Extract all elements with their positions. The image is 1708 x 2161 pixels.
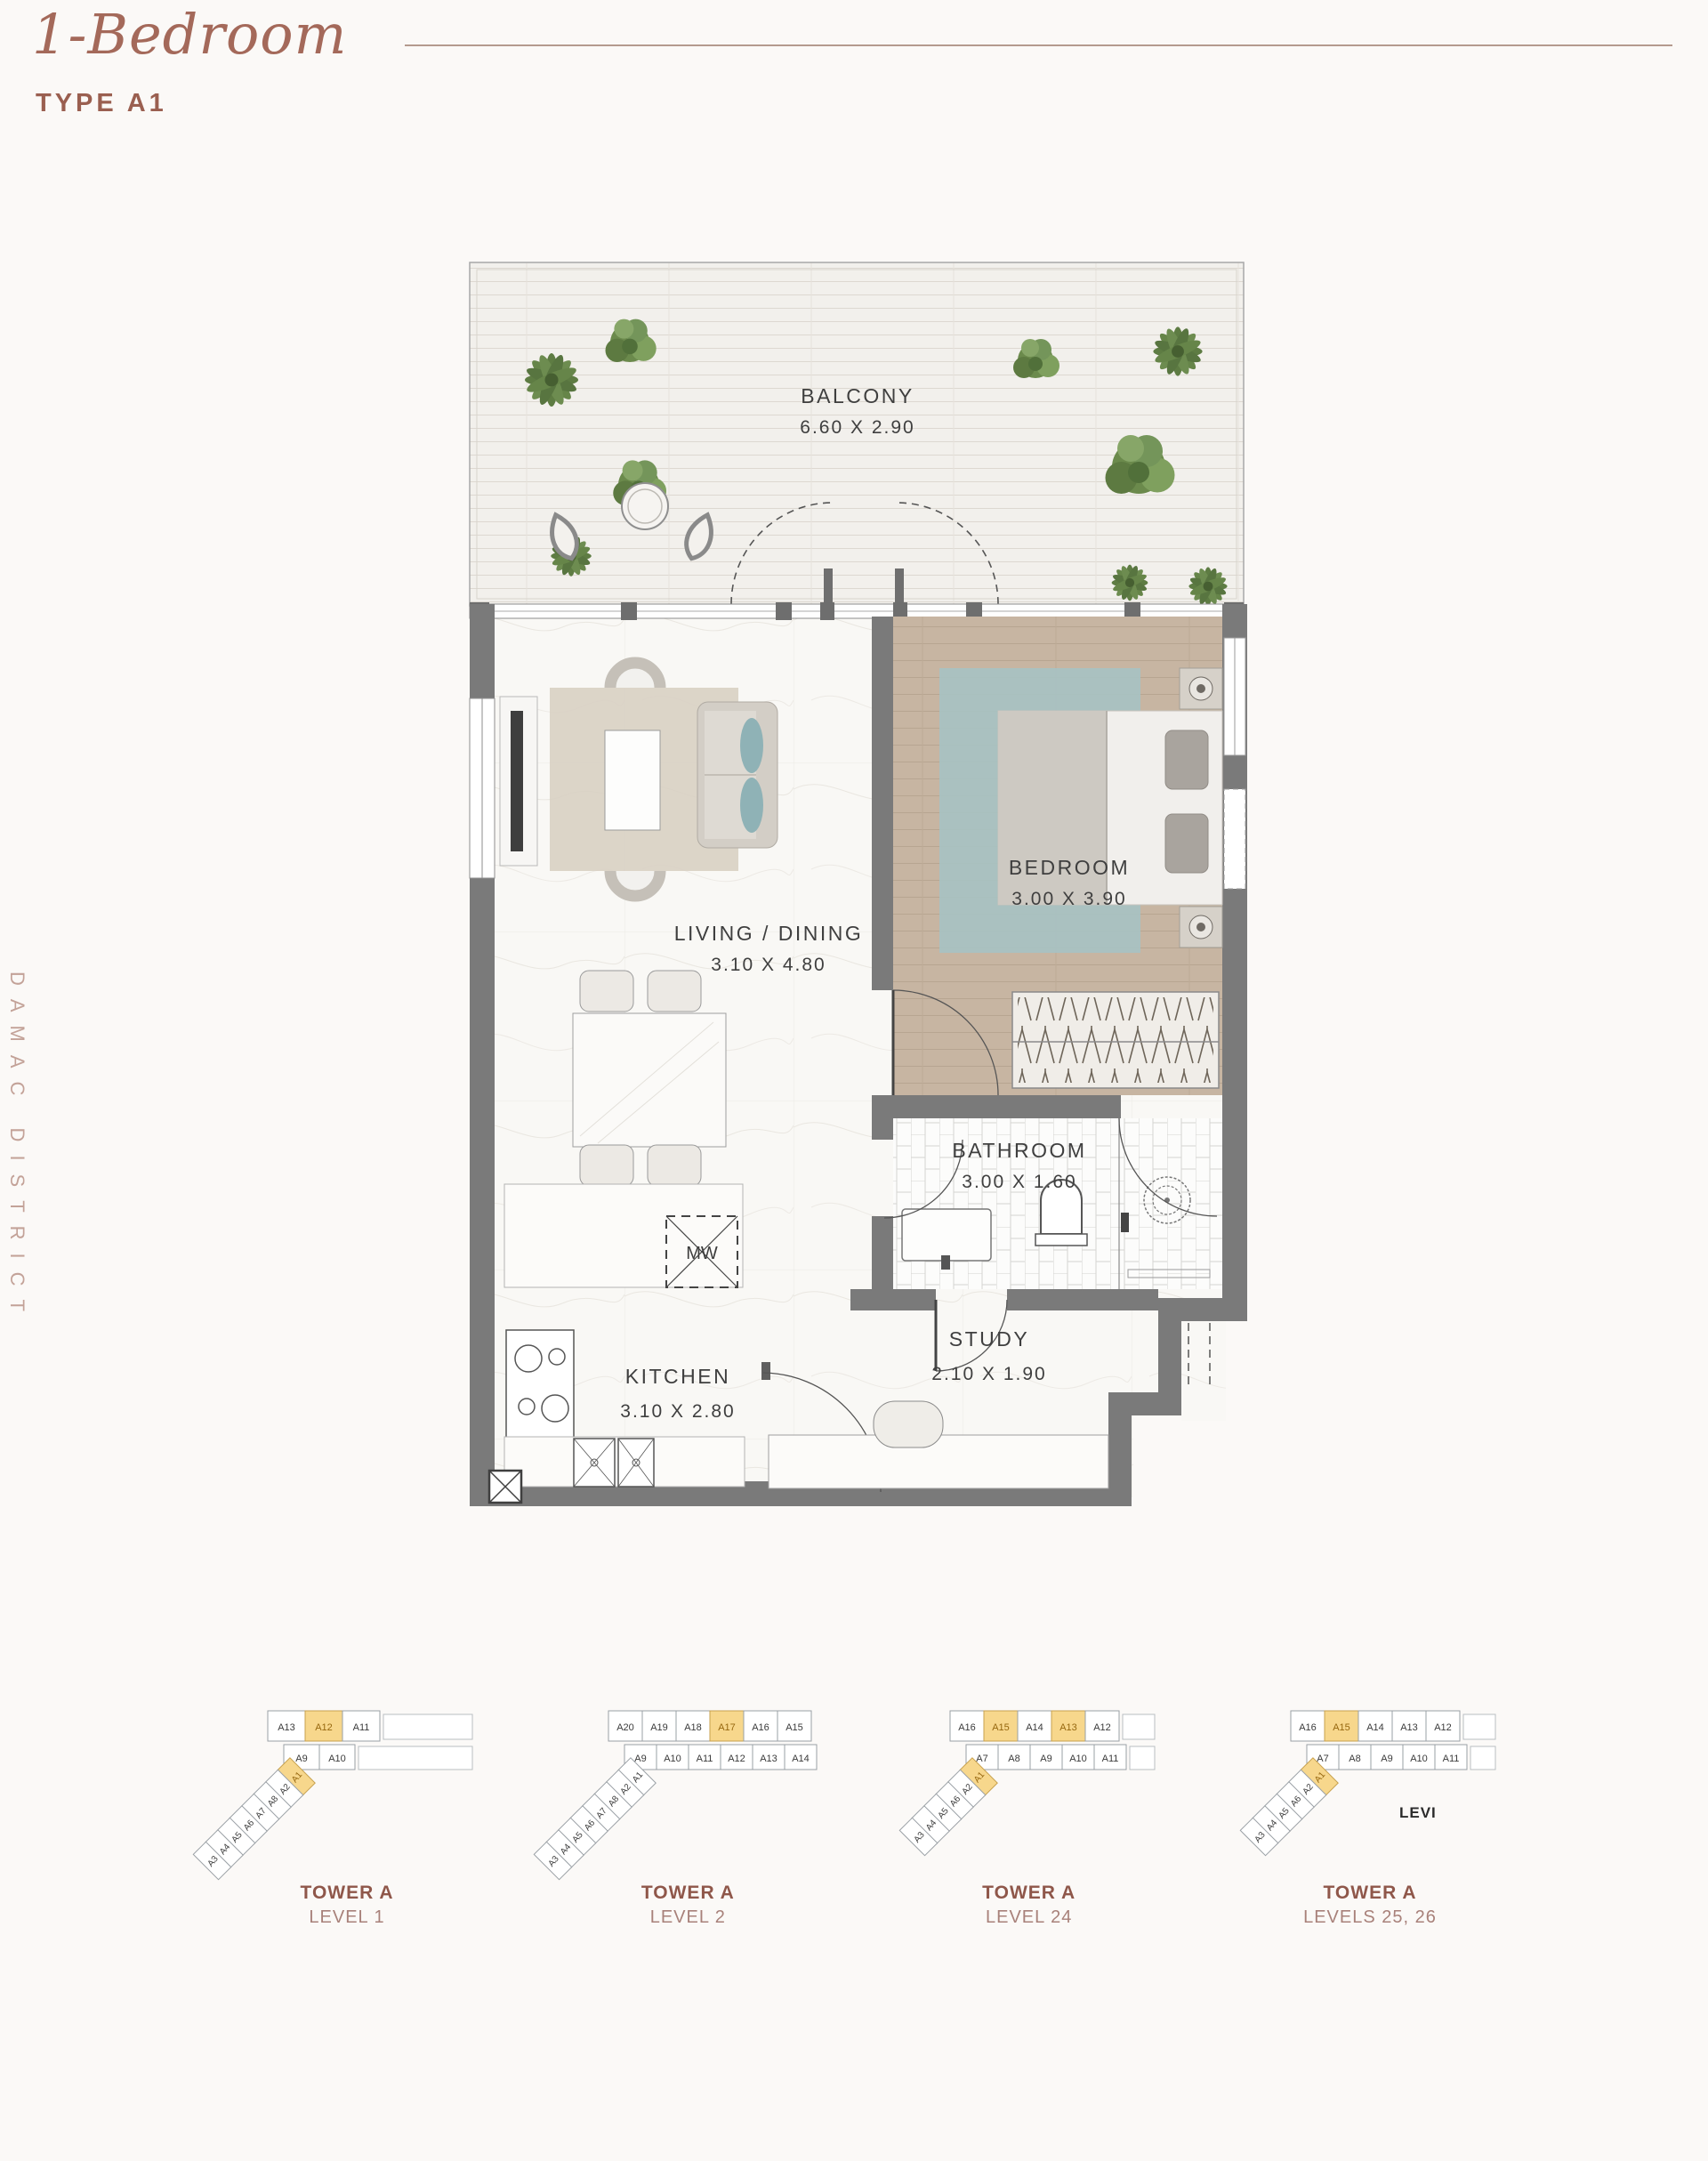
vanity-sink xyxy=(902,1209,991,1270)
svg-text:A20: A20 xyxy=(617,1722,635,1733)
floor-plan: BALCONY 6.60 X 2.90 xyxy=(455,255,1270,1554)
study-desk xyxy=(769,1435,1108,1488)
svg-text:A9: A9 xyxy=(635,1754,647,1764)
keyplan-tower-a-level-24: A16A15A14A13A12A7A8A9A10A11A1A2A6A5A4A3 … xyxy=(865,1695,1194,1928)
svg-text:A10: A10 xyxy=(1069,1754,1087,1764)
keyplan-tower-label: TOWER A xyxy=(1205,1883,1535,1904)
kitchen-counter xyxy=(504,1184,743,1287)
room-label-living: LIVING / DINING xyxy=(674,922,864,945)
nightstand xyxy=(1180,668,1222,709)
svg-text:A11: A11 xyxy=(353,1722,370,1733)
room-dims-bedroom: 3.00 X 3.90 xyxy=(1011,889,1126,909)
svg-text:A14: A14 xyxy=(793,1754,810,1764)
svg-text:A13: A13 xyxy=(761,1754,778,1764)
svg-text:A13: A13 xyxy=(1059,1722,1077,1733)
balcony-area: BALCONY 6.60 X 2.90 xyxy=(470,262,1244,606)
kitchen-sink xyxy=(574,1439,654,1487)
svg-text:A11: A11 xyxy=(1101,1754,1118,1764)
svg-text:A9: A9 xyxy=(295,1754,307,1764)
keyplan-level-label: LEVEL 24 xyxy=(865,1907,1194,1928)
floor-plan-drawing: BALCONY 6.60 X 2.90 xyxy=(455,255,1263,1552)
keyplans-row: A13A12A11A9A10A1A2A8A7A6A5A4A3 TOWER A L… xyxy=(182,1695,1535,1928)
svg-text:A10: A10 xyxy=(665,1754,682,1764)
study-stool xyxy=(874,1401,943,1447)
svg-text:A14: A14 xyxy=(1026,1722,1043,1733)
room-label-bedroom: BEDROOM xyxy=(1009,856,1130,879)
keyplan-tower-label: TOWER A xyxy=(523,1883,852,1904)
side-brand-text: DAMAC DISTRICT xyxy=(5,972,28,1541)
svg-text:A16: A16 xyxy=(958,1722,976,1733)
wardrobe xyxy=(1012,992,1219,1088)
room-dims-bathroom: 3.00 X 1.60 xyxy=(962,1172,1076,1192)
keyplan-diagram: A20A19A18A17A16A15A9A10A11A12A13A14A1A2A… xyxy=(541,1695,834,1879)
svg-text:A15: A15 xyxy=(1333,1722,1350,1733)
svg-text:A12: A12 xyxy=(729,1754,746,1764)
svg-text:A16: A16 xyxy=(1299,1722,1317,1733)
keyplan-tower-a-level-2: A20A19A18A17A16A15A9A10A11A12A13A14A1A2A… xyxy=(523,1695,852,1928)
keyplan-level-label: LEVEL 2 xyxy=(523,1907,852,1928)
svg-text:A19: A19 xyxy=(651,1722,669,1733)
room-dims-kitchen: 3.10 X 2.80 xyxy=(620,1401,735,1422)
svg-text:A13: A13 xyxy=(278,1722,295,1733)
svg-text:A12: A12 xyxy=(1093,1722,1111,1733)
page-title: 1-Bedroom xyxy=(32,2,347,67)
svg-text:A17: A17 xyxy=(719,1722,737,1733)
svg-text:A11: A11 xyxy=(697,1754,713,1764)
svg-text:A7: A7 xyxy=(976,1754,987,1764)
sofa xyxy=(697,702,777,848)
svg-text:A16: A16 xyxy=(753,1722,770,1733)
stove xyxy=(506,1330,574,1439)
keyplan-tower-a-levels-25-26: A16A15A14A13A12A7A8A9A10A11A1A2A6A5A4A3L… xyxy=(1205,1695,1535,1928)
room-dims-balcony: 6.60 X 2.90 xyxy=(800,417,914,438)
keyplan-diagram: A16A15A14A13A12A7A8A9A10A11A1A2A6A5A4A3 xyxy=(882,1695,1176,1879)
svg-text:A9: A9 xyxy=(1040,1754,1051,1764)
brochure-page: 1-Bedroom TYPE A1 DAMAC DISTRICT xyxy=(0,0,1708,2161)
room-dims-study: 2.10 X 1.90 xyxy=(931,1364,1046,1384)
keyplan-level-label: LEVEL 1 xyxy=(182,1907,512,1928)
balcony-table xyxy=(622,483,668,529)
svg-text:A14: A14 xyxy=(1366,1722,1384,1733)
svg-text:A13: A13 xyxy=(1400,1722,1418,1733)
svg-text:LEVI: LEVI xyxy=(1399,1804,1437,1821)
svg-text:A8: A8 xyxy=(1349,1754,1360,1764)
keyplan-level-label: LEVELS 25, 26 xyxy=(1205,1907,1535,1928)
armchair xyxy=(610,871,660,896)
keyplan-tower-a-level-1: A13A12A11A9A10A1A2A8A7A6A5A4A3 TOWER A L… xyxy=(182,1695,512,1928)
armchair xyxy=(610,663,660,688)
keyplan-tower-label: TOWER A xyxy=(182,1883,512,1904)
svg-text:A7: A7 xyxy=(1317,1754,1328,1764)
coffee-table xyxy=(605,730,660,830)
keyplan-diagram: A13A12A11A9A10A1A2A8A7A6A5A4A3 xyxy=(200,1695,494,1879)
svg-text:A10: A10 xyxy=(328,1754,346,1764)
column xyxy=(489,1471,521,1503)
room-label-bathroom: BATHROOM xyxy=(952,1139,1086,1162)
svg-text:A15: A15 xyxy=(786,1722,804,1733)
svg-text:A10: A10 xyxy=(1410,1754,1428,1764)
microwave-label: MW xyxy=(686,1244,718,1263)
room-label-kitchen: KITCHEN xyxy=(625,1365,730,1388)
svg-text:A8: A8 xyxy=(1008,1754,1019,1764)
nightstand xyxy=(1180,907,1222,947)
svg-text:A12: A12 xyxy=(315,1722,333,1733)
svg-text:A11: A11 xyxy=(1443,1754,1460,1764)
svg-text:A12: A12 xyxy=(1434,1722,1452,1733)
room-label-balcony: BALCONY xyxy=(801,384,914,407)
room-label-study: STUDY xyxy=(949,1327,1029,1351)
tv xyxy=(511,711,523,851)
title-divider xyxy=(405,44,1672,46)
bedroom-area: BEDROOM 3.00 X 3.90 xyxy=(893,617,1222,1095)
keyplan-tower-label: TOWER A xyxy=(865,1883,1194,1904)
keyplan-diagram: A16A15A14A13A12A7A8A9A10A11A1A2A6A5A4A3L… xyxy=(1223,1695,1517,1879)
svg-text:A18: A18 xyxy=(685,1722,703,1733)
page-subtitle: TYPE A1 xyxy=(36,89,167,118)
svg-text:A9: A9 xyxy=(1381,1754,1392,1764)
bathroom-area: BATHROOM 3.00 X 1.60 xyxy=(884,1118,1222,1289)
room-dims-living: 3.10 X 4.80 xyxy=(711,955,826,975)
svg-text:A15: A15 xyxy=(992,1722,1010,1733)
